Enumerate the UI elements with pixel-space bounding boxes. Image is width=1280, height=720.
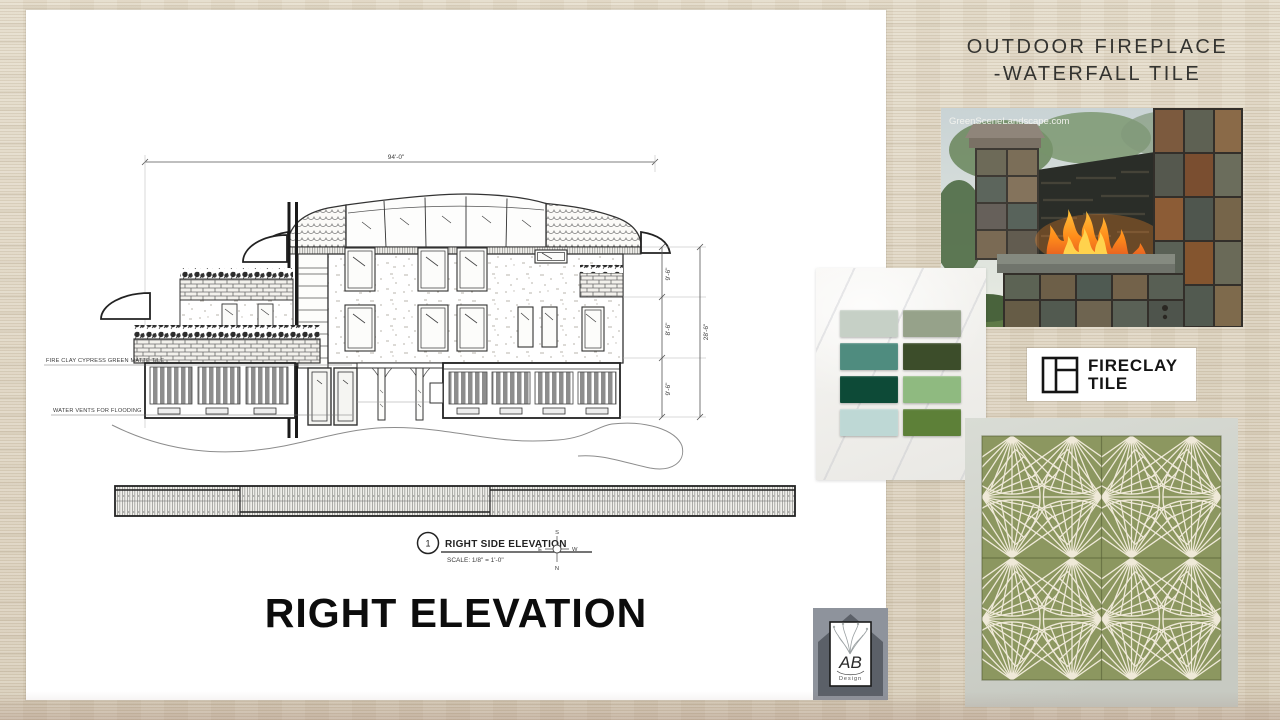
left-flood-vents: [145, 363, 295, 418]
board-title: OUTDOOR FIREPLACE -WATERFALL TILE: [955, 34, 1240, 88]
ab-design-logo-graphic: AB Design: [813, 608, 888, 700]
tile-swatch-emerald: [840, 376, 898, 403]
fireclay-logo-text: FIRECLAY TILE: [1088, 357, 1178, 393]
photo-watermark: GreenSceneLandscape.com: [949, 116, 1069, 127]
ab-design-logo: AB Design: [813, 608, 888, 700]
ab-monogram: AB: [838, 653, 862, 672]
pattern-tile-photo: [965, 418, 1238, 707]
annotation-tile: FIRE CLAY CYPRESS GREEN MATTE TILE: [46, 358, 164, 364]
tile-swatch-light-sage: [840, 310, 898, 337]
compass-s: S: [555, 530, 559, 536]
drawing-scale: SCALE: 1/8" = 1'-0": [447, 557, 504, 564]
dimension-top-label: 94'-0": [388, 154, 405, 161]
tile-swatch-grid: [840, 310, 961, 436]
entry-doors: [308, 368, 357, 425]
compass-n: N: [555, 566, 559, 572]
tile-swatch-pale-aqua: [840, 409, 898, 436]
left-pillar: [965, 124, 1045, 260]
tile-swatch-teal-green: [840, 343, 898, 370]
fireplace-base: [997, 254, 1185, 327]
compass-e: E: [538, 547, 542, 553]
elevation-panel: 94'-0": [26, 10, 886, 700]
detail-number: 1: [425, 539, 430, 549]
dim-right-1: 9'-6": [665, 267, 672, 281]
dimension-right: [620, 244, 706, 420]
ab-design-subtext: Design: [839, 676, 862, 682]
boardwalk-strip: [115, 486, 795, 516]
slide-background: 94'-0": [0, 0, 1280, 720]
board-title-line1: OUTDOOR FIREPLACE: [955, 34, 1240, 61]
tile-swatch-gray-green: [903, 310, 961, 337]
main-wall: [328, 248, 623, 363]
tile-swatch-medium-green: [903, 376, 961, 403]
fireclay-line2: TILE: [1088, 375, 1178, 393]
tile-sample-board: [816, 268, 986, 480]
dim-right-2: 8'-6": [665, 322, 672, 336]
tile-swatch-moss-green: [903, 409, 961, 436]
fireplace-photo: GreenSceneLandscape.com: [941, 108, 1243, 327]
board-title-line2: -WATERFALL TILE: [955, 61, 1240, 88]
drawing-title: RIGHT SIDE ELEVATION: [445, 539, 567, 550]
fireclay-tile-logo: FIRECLAY TILE: [1027, 348, 1196, 401]
drawing-title-block: 1 RIGHT SIDE ELEVATION SCALE: 1/8" = 1'-…: [418, 533, 593, 565]
left-upper-wing: [180, 235, 293, 333]
roof: [259, 194, 670, 254]
ground-line: [112, 423, 683, 469]
right-flood-vents: [430, 363, 620, 418]
fireclay-logo-icon: [1041, 356, 1079, 394]
dim-right-overall: 28'-6": [703, 323, 710, 340]
compass: S E W N: [538, 530, 578, 572]
tile-swatch-dark-forest: [903, 343, 961, 370]
dim-right-3: 9'-6": [665, 382, 672, 396]
compass-w: W: [572, 547, 578, 553]
fireclay-line1: FIRECLAY: [1088, 357, 1178, 375]
annotation-vents: WATER VENTS FOR FLOODING: [53, 408, 142, 414]
elevation-caption: RIGHT ELEVATION: [26, 590, 886, 637]
